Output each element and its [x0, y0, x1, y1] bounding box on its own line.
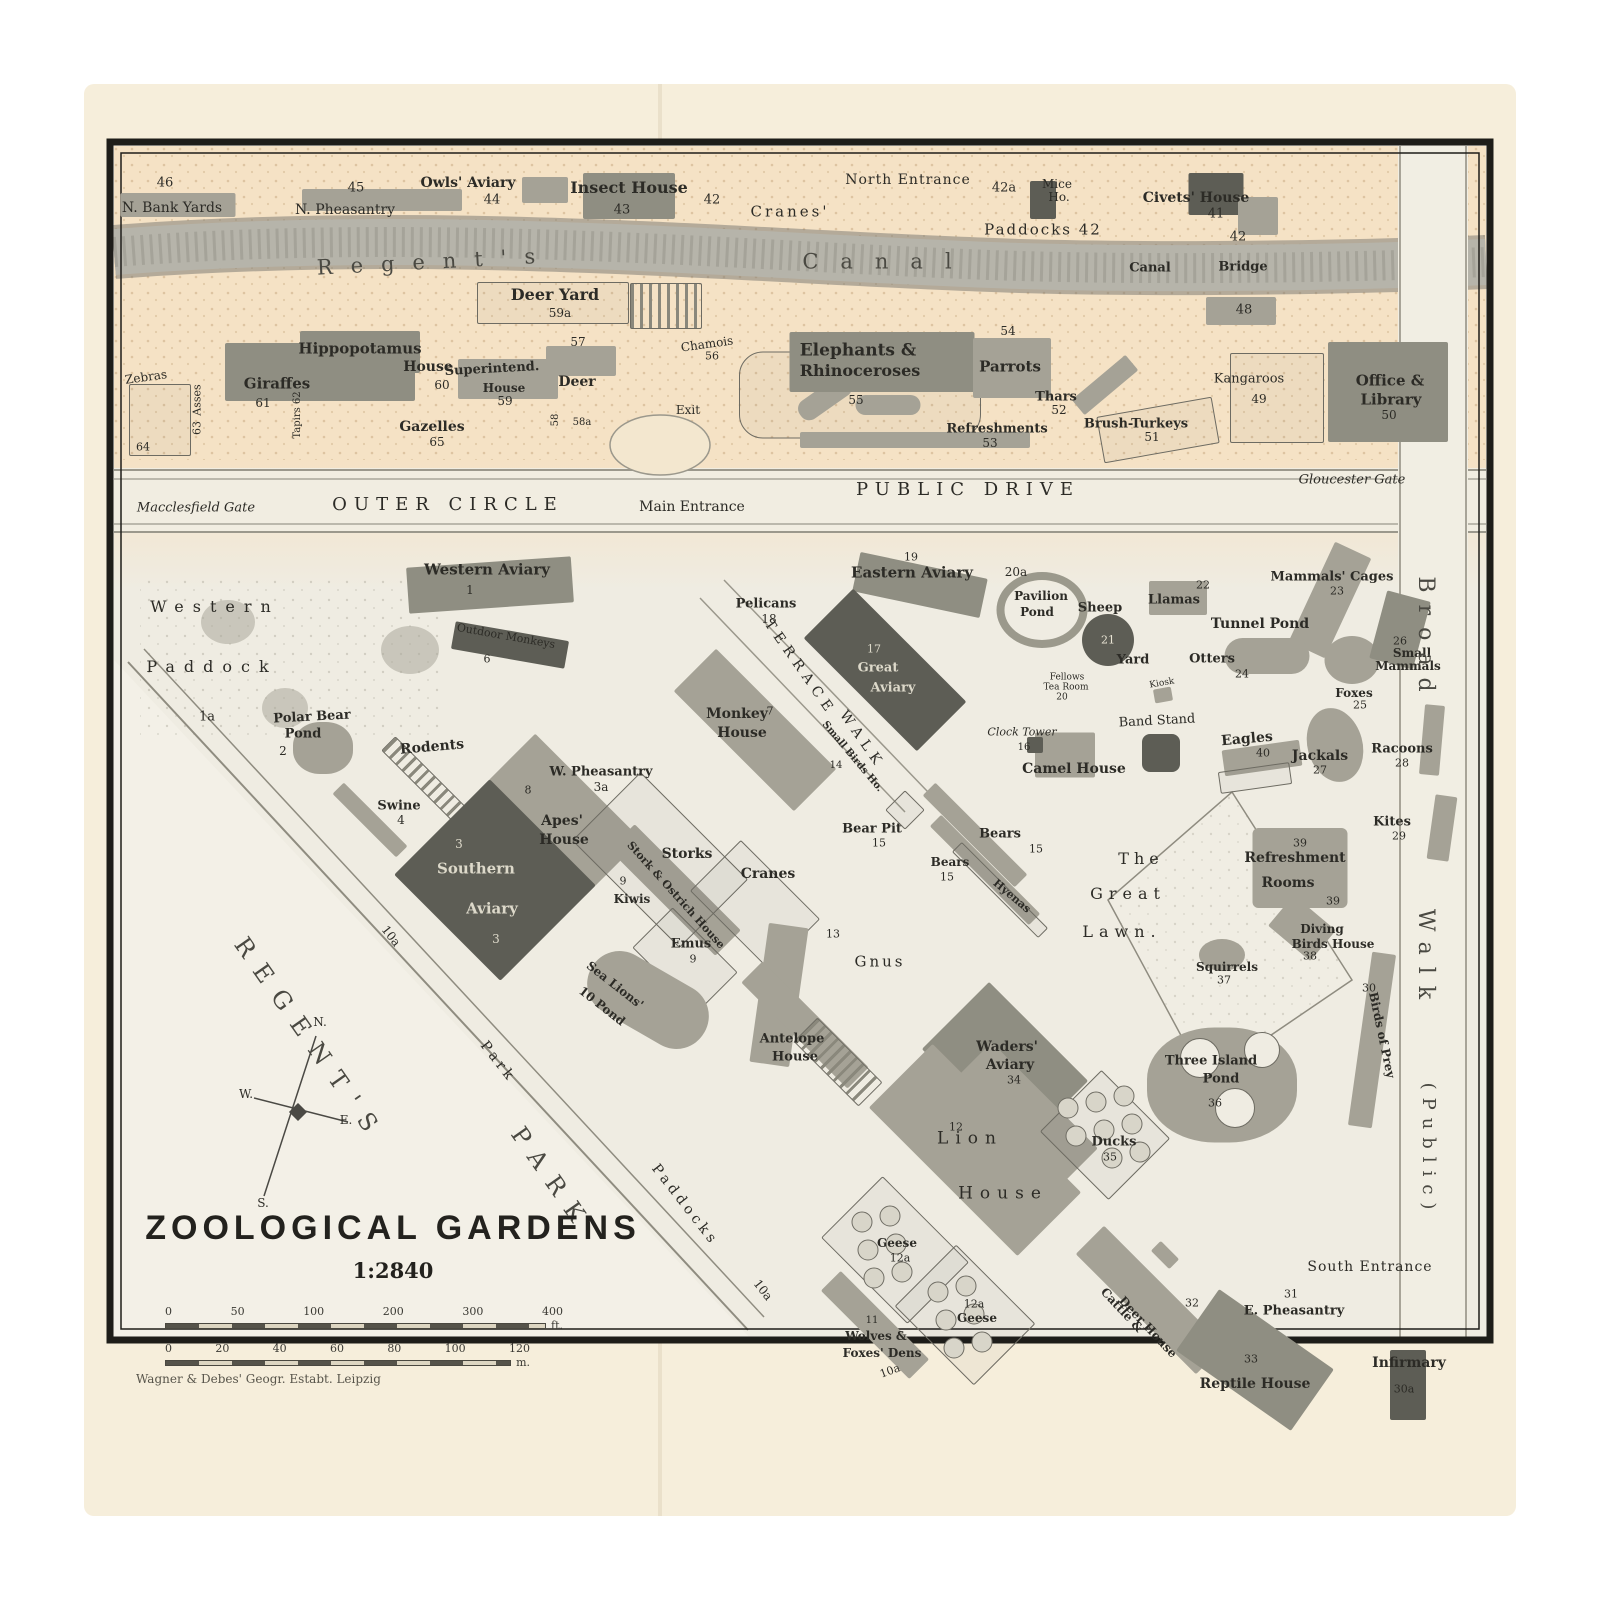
map-label: 42a: [992, 182, 1016, 195]
scalebar-tick: 400: [542, 1305, 563, 1318]
map-label: 3: [455, 838, 463, 850]
map-label: Library: [1361, 393, 1422, 408]
scalebar-feet-bar: [165, 1323, 546, 1329]
map-label: Rodents: [399, 737, 464, 757]
map-label: 29: [1392, 831, 1406, 842]
map-label: 52: [1051, 404, 1066, 416]
map-label: Pelicans: [736, 598, 797, 611]
scalebar-meters-ticks: 020406080100120: [165, 1342, 530, 1355]
map-label: Owls' Aviary: [421, 176, 516, 190]
map-label: Yard: [1117, 654, 1150, 667]
map-label: Rooms: [1261, 876, 1314, 890]
map-label: 20: [1056, 694, 1067, 703]
map-label: 10a: [379, 923, 402, 948]
map-label: Bears: [979, 828, 1021, 841]
map-label: 9: [620, 876, 627, 887]
map-label: Deer: [558, 375, 595, 389]
map-label: Aviary: [986, 1058, 1034, 1072]
map-label: Refreshment: [1244, 851, 1345, 865]
scalebar-tick: 100: [445, 1342, 466, 1355]
map-label: 33: [1244, 1354, 1258, 1365]
map-label: 24: [1235, 669, 1249, 680]
map-label: 1: [466, 584, 474, 596]
map-label: Pavilion: [1014, 590, 1068, 602]
map-label: 49: [1251, 393, 1266, 405]
map-label: 30a: [1394, 1384, 1415, 1395]
map-label: 60: [434, 379, 449, 391]
map-label: 15: [1029, 844, 1043, 855]
map-label: 64: [136, 442, 150, 453]
map-label: Aviary: [871, 682, 916, 695]
map-label: (Public): [1419, 1083, 1437, 1218]
map-label: 34: [1007, 1075, 1021, 1086]
map-label: 15: [872, 838, 886, 849]
scalebar-tick: 0: [165, 1305, 172, 1318]
map-label: W. Pheasantry: [549, 766, 652, 779]
map-label: 10a: [751, 1277, 774, 1302]
map-label: Band Stand: [1118, 713, 1195, 730]
map-label: Storks: [662, 847, 713, 861]
map-label: House: [539, 833, 589, 847]
map-label: Racoons: [1371, 743, 1433, 756]
map-label: 12a: [890, 1253, 911, 1264]
map-label: 22: [1196, 580, 1210, 591]
map-label: Mammals' Cages: [1271, 571, 1394, 584]
scalebar-meters-bar: [165, 1360, 511, 1366]
map-label: Macclesfield Gate: [137, 502, 255, 515]
scalebar-tick: 50: [231, 1305, 245, 1318]
map-label: 9: [690, 954, 697, 965]
map-label: Paddocks: [649, 1162, 721, 1249]
cartographer-imprint: Wagner & Debes' Geogr. Estabt. Leipzig: [136, 1372, 381, 1386]
scalebar-tick: 40: [273, 1342, 287, 1355]
map-label: 41: [1208, 208, 1225, 221]
map-label: 17: [867, 644, 881, 655]
map-label: 27: [1313, 765, 1327, 776]
map-label: Park: [478, 1039, 519, 1086]
map-label: Antelope: [760, 1033, 825, 1046]
map-label: Geese: [877, 1237, 917, 1249]
scalebar-feet-ticks: 050100200300400: [165, 1305, 563, 1318]
map-label: Great: [1090, 886, 1166, 902]
map-label: Jackals: [1292, 749, 1348, 763]
map-label: The: [1118, 851, 1163, 867]
map-label: 28: [1395, 758, 1409, 769]
map-label: Tunnel Pond: [1211, 617, 1309, 631]
map-label: 13: [826, 929, 840, 940]
map-label: 58: [551, 414, 561, 427]
map-label: 55: [848, 394, 863, 406]
map-label: North Entrance: [845, 173, 971, 187]
map-label: House: [483, 382, 525, 394]
map-label: TERRACE: [762, 617, 839, 718]
scalebar-tick: 200: [383, 1305, 404, 1318]
map-label: Tapirs 62: [293, 391, 303, 438]
map-label: Rhinoceroses: [800, 363, 921, 379]
map-label: N. Bank Yards: [122, 201, 222, 215]
map-label: Geese: [957, 1312, 997, 1324]
map-label: Polar Bear: [273, 708, 351, 725]
map-label: Giraffes: [244, 377, 310, 392]
map-label: Waders': [976, 1040, 1038, 1054]
map-label: 53: [982, 437, 997, 449]
map-label: Lawn.: [1082, 924, 1161, 940]
map-label: Canal: [802, 252, 973, 273]
map-label: Brush-Turkeys: [1084, 418, 1188, 431]
map-label: Main Entrance: [639, 500, 745, 514]
map-label: 57: [570, 336, 585, 348]
map-label: Elephants &: [800, 343, 917, 360]
map-label: Hyenas: [991, 877, 1033, 914]
map-label: Asses: [192, 384, 203, 415]
map-label: Birds House: [1292, 938, 1375, 950]
map-label: Otters: [1189, 653, 1235, 666]
scalebar-meters: 020406080100120 m.: [165, 1342, 530, 1369]
map-label: 61: [255, 397, 270, 409]
map-label: Southern: [437, 862, 515, 877]
map-label: 36: [1208, 1098, 1222, 1109]
map-label: 44: [484, 194, 501, 207]
map-label: Kites: [1373, 816, 1411, 829]
map-label: 21: [1101, 635, 1115, 646]
map-label: 39: [1293, 838, 1307, 849]
map-label: Outdoor Monkeys: [456, 622, 556, 650]
scalebar-tick: 100: [303, 1305, 324, 1318]
map-label: Civets' House: [1143, 191, 1250, 205]
scalebar-meters-unit: m.: [516, 1356, 530, 1369]
map-label: 6: [484, 654, 491, 665]
map-label: Deer Yard: [511, 287, 599, 303]
map-label: 58a: [573, 418, 592, 428]
map-label: 1a: [199, 711, 215, 724]
map-label: 2: [279, 745, 287, 757]
map-label: 42: [704, 194, 721, 207]
map-label: 56: [705, 351, 719, 362]
map-label: Western: [150, 599, 280, 615]
map-label: 43: [614, 204, 631, 217]
map-label: Infirmary: [1372, 1356, 1446, 1370]
map-label: Walk: [1414, 909, 1436, 1011]
map-label: Cranes: [741, 867, 796, 881]
map-label: Fellows: [1050, 674, 1085, 683]
map-label: Western Aviary: [424, 563, 550, 578]
map-label: 25: [1353, 700, 1367, 711]
title-block: ZOOLOGICAL GARDENS 1:2840: [145, 1209, 641, 1283]
map-label: Gazelles: [399, 420, 464, 434]
map-label: 39: [1326, 896, 1340, 907]
map-label: 8: [525, 785, 532, 796]
map-label: 48: [1236, 304, 1253, 317]
scalebar-tick: 120: [509, 1342, 530, 1355]
map-label: Pond: [1020, 606, 1054, 618]
map-label: Aviary: [466, 902, 518, 917]
map-label: Paddock: [146, 659, 277, 675]
map-label: E. Pheasantry: [1244, 1305, 1344, 1318]
map-label: 4: [397, 814, 405, 826]
map-label: 11: [866, 1316, 879, 1326]
map-label: Bears: [931, 856, 970, 868]
map-label: Broad: [1414, 576, 1436, 703]
map-label: Office &: [1356, 374, 1425, 389]
map-label: Ho.: [1048, 191, 1069, 203]
map-label: Three Island: [1165, 1055, 1257, 1068]
map-label: Eastern Aviary: [851, 566, 973, 581]
map-label: Pond: [285, 728, 322, 741]
map-label: Apes': [541, 814, 583, 828]
map-label: Deer House: [1117, 1294, 1179, 1360]
map-label: 42: [1230, 231, 1247, 244]
map-label: Sheep: [1078, 602, 1122, 615]
map-label: Paddocks 42: [984, 223, 1102, 238]
map-label: 7: [767, 706, 774, 717]
map-label: Llamas: [1148, 594, 1200, 607]
map-label: 26: [1393, 636, 1407, 647]
map-label: 35: [1103, 1152, 1117, 1163]
map-label: 59a: [549, 307, 571, 319]
map-label: Kiosk: [1149, 677, 1175, 690]
map-label: Camel House: [1022, 762, 1126, 776]
map-label: House: [772, 1051, 818, 1064]
scalebar-tick: 0: [165, 1342, 172, 1355]
map-label: Bear Pit: [842, 823, 902, 836]
map-label: Squirrels: [1196, 961, 1258, 973]
map-label: Insect House: [570, 180, 688, 196]
map-label: N.: [313, 1016, 327, 1028]
scalebar-tick: 300: [462, 1305, 483, 1318]
map-label: 23: [1330, 586, 1344, 597]
map-label: 3a: [594, 781, 609, 793]
map-label: W.: [239, 1088, 253, 1100]
map-scale-ratio: 1:2840: [145, 1258, 641, 1283]
map-label: 59: [497, 395, 512, 407]
map-label: Kiwis: [614, 893, 651, 905]
map-label: Zebras: [124, 368, 167, 386]
map-label: Bridge: [1218, 261, 1267, 274]
map-label: 31: [1284, 1289, 1298, 1300]
map-label: 3: [492, 933, 500, 945]
scalebar-tick: 20: [215, 1342, 229, 1355]
map-label: Superintend.: [444, 360, 539, 378]
map-label: 50: [1381, 409, 1396, 421]
map-label: OUTER CIRCLE: [332, 496, 564, 514]
map-label: Swine: [377, 800, 420, 813]
map-label: Eagles: [1221, 730, 1274, 748]
map-label: PUBLIC DRIVE: [856, 481, 1080, 499]
map-label: Monkey: [706, 707, 768, 721]
map-label: Great: [858, 662, 899, 675]
map-label: House: [958, 1186, 1048, 1203]
map-label: Foxes' Dens: [843, 1347, 922, 1359]
map-label: Reptile House: [1200, 1377, 1311, 1391]
map-label: Cranes': [751, 205, 830, 220]
map-label: Tea Room: [1043, 684, 1088, 693]
map-title: ZOOLOGICAL GARDENS: [145, 1209, 641, 1248]
map-label: 10a: [878, 1362, 901, 1379]
map-label: Wolves &: [845, 1330, 906, 1342]
map-label: 20a: [1005, 566, 1027, 578]
map-label: 37: [1217, 975, 1231, 986]
scalebar-tick: 60: [330, 1342, 344, 1355]
map-label: Ducks: [1092, 1136, 1137, 1149]
scalebar-tick: 80: [387, 1342, 401, 1355]
map-label: Emus: [671, 938, 711, 951]
map-label: Foxes: [1335, 687, 1372, 699]
map-label: Mice: [1042, 178, 1072, 190]
map-label: Birds of Prey: [1367, 991, 1397, 1079]
map-label: Lion: [937, 1131, 1003, 1148]
map-label: 16: [1018, 743, 1031, 753]
map-label: 38: [1303, 951, 1317, 962]
map-label: Thars: [1035, 391, 1077, 404]
map-label: 63: [192, 421, 203, 435]
map-label: 51: [1144, 431, 1159, 443]
map-label: 46: [157, 177, 174, 190]
map-label: House: [717, 726, 767, 740]
map-label: Diving: [1300, 923, 1344, 935]
map-label: Pond: [1203, 1073, 1240, 1086]
map-label: 54: [1000, 325, 1015, 337]
map-label: 45: [348, 182, 365, 195]
map-label: 65: [429, 436, 444, 448]
map-label: Regent's: [316, 245, 553, 278]
map-label: 40: [1256, 748, 1270, 759]
map-label: S.: [257, 1197, 269, 1209]
map-label: Clock Tower: [987, 727, 1056, 738]
zoo-map-page: 46N. Bank Yards45N. PheasantryOwls' Avia…: [0, 0, 1600, 1600]
map-label: Hippopotamus: [298, 342, 421, 357]
map-label: 12a: [964, 1299, 985, 1310]
map-label: REGENT'S: [230, 933, 390, 1147]
map-label: South Entrance: [1307, 1260, 1432, 1274]
map-label: E.: [340, 1114, 353, 1126]
scalebar-feet-unit: ft.: [551, 1319, 563, 1332]
map-label: Gloucester Gate: [1299, 474, 1406, 487]
map-label: Exit: [676, 404, 700, 416]
map-label: 32: [1185, 1298, 1199, 1309]
scalebar-feet: 050100200300400 ft.: [165, 1305, 563, 1332]
map-label: Parrots: [979, 360, 1041, 375]
map-label: Canal: [1129, 262, 1171, 275]
map-label: 14: [830, 761, 843, 771]
map-label: 15: [940, 872, 954, 883]
map-label: N. Pheasantry: [295, 203, 395, 217]
map-label: 19: [904, 552, 918, 563]
map-label: Gnus: [854, 955, 905, 970]
map-label: Kangaroos: [1214, 373, 1284, 386]
map-label: Refreshments: [946, 423, 1047, 436]
